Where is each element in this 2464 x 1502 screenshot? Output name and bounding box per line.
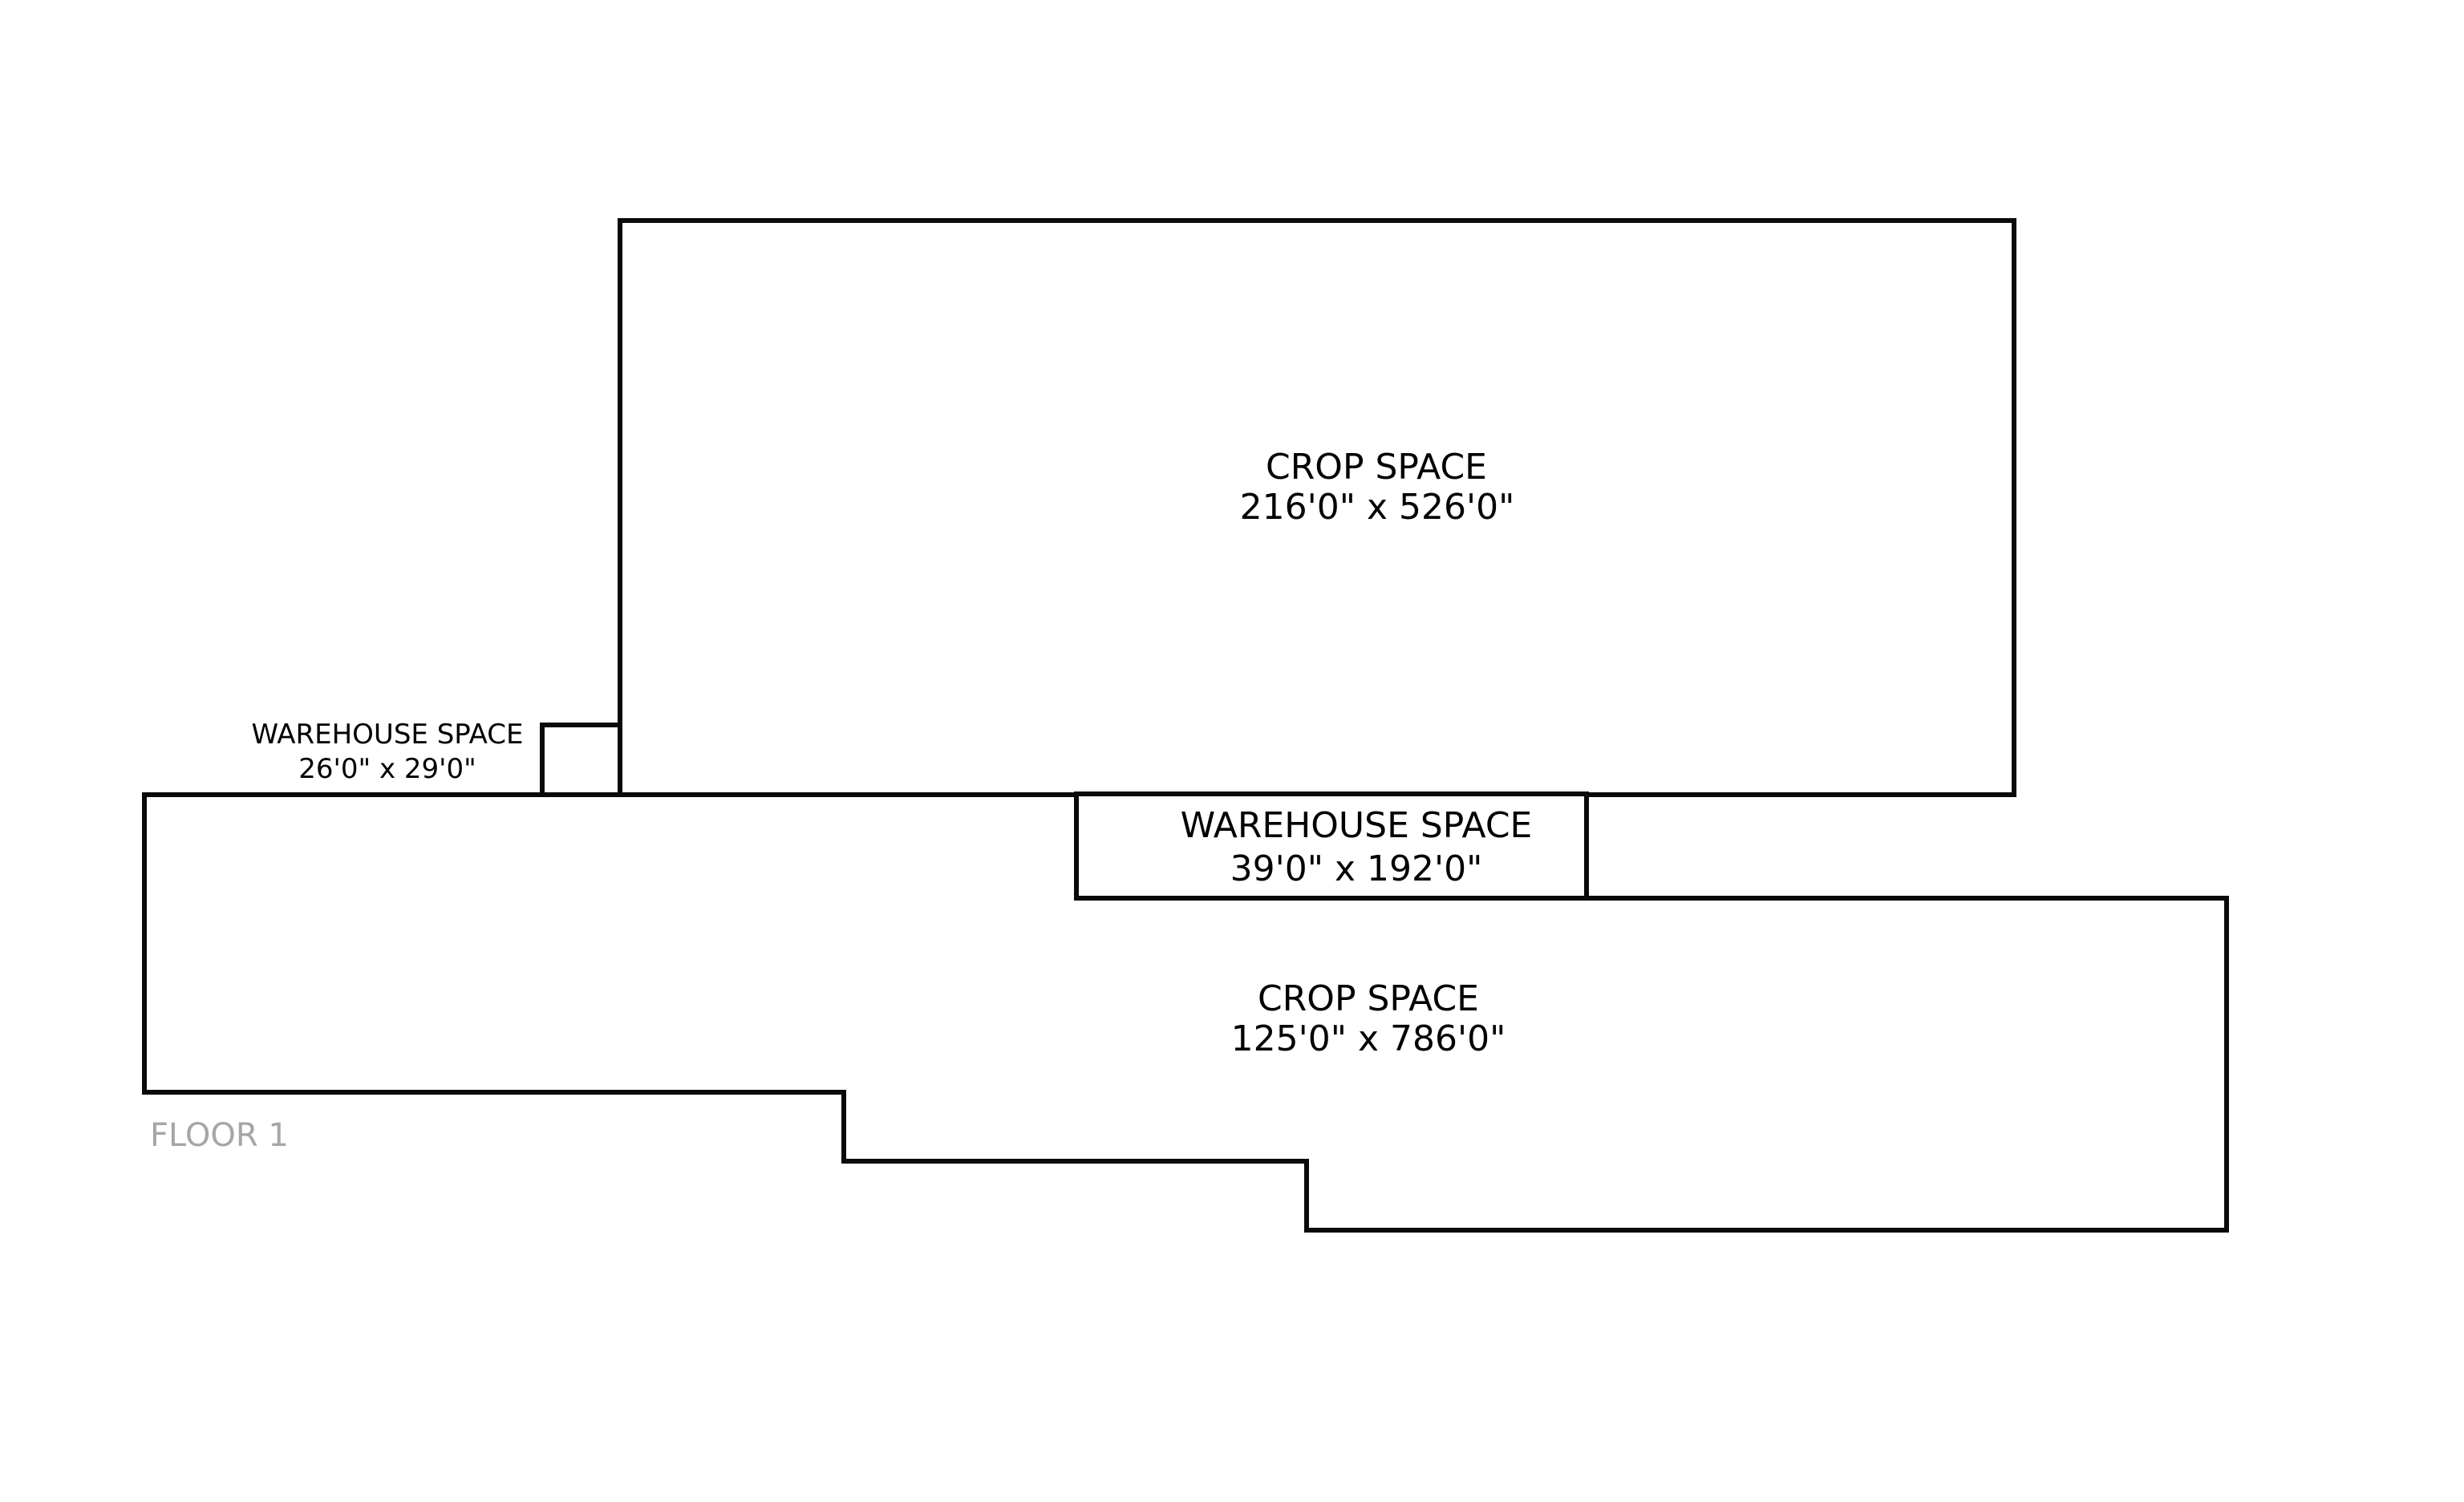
floor-plan-page: CROP SPACE 216'0" x 526'0" WAREHOUSE SPA… [0, 0, 2464, 1502]
warehouse-small-dims: 26'0" x 29'0" [298, 753, 476, 785]
floor-label: FLOOR 1 [150, 1117, 289, 1154]
crop-space-bottom-dims: 125'0" x 786'0" [1231, 1018, 1506, 1059]
warehouse-small-outline [542, 725, 620, 795]
warehouse-mid-dims: 39'0" x 192'0" [1230, 848, 1483, 889]
crop-space-top-dims: 216'0" x 526'0" [1240, 487, 1515, 528]
crop-space-top-label: CROP SPACE [1266, 447, 1487, 488]
warehouse-mid-label: WAREHOUSE SPACE [1181, 805, 1533, 846]
warehouse-small-label: WAREHOUSE SPACE [251, 719, 523, 751]
floor-plan-canvas: CROP SPACE 216'0" x 526'0" WAREHOUSE SPA… [0, 0, 2464, 1502]
crop-space-bottom-label: CROP SPACE [1258, 978, 1479, 1019]
